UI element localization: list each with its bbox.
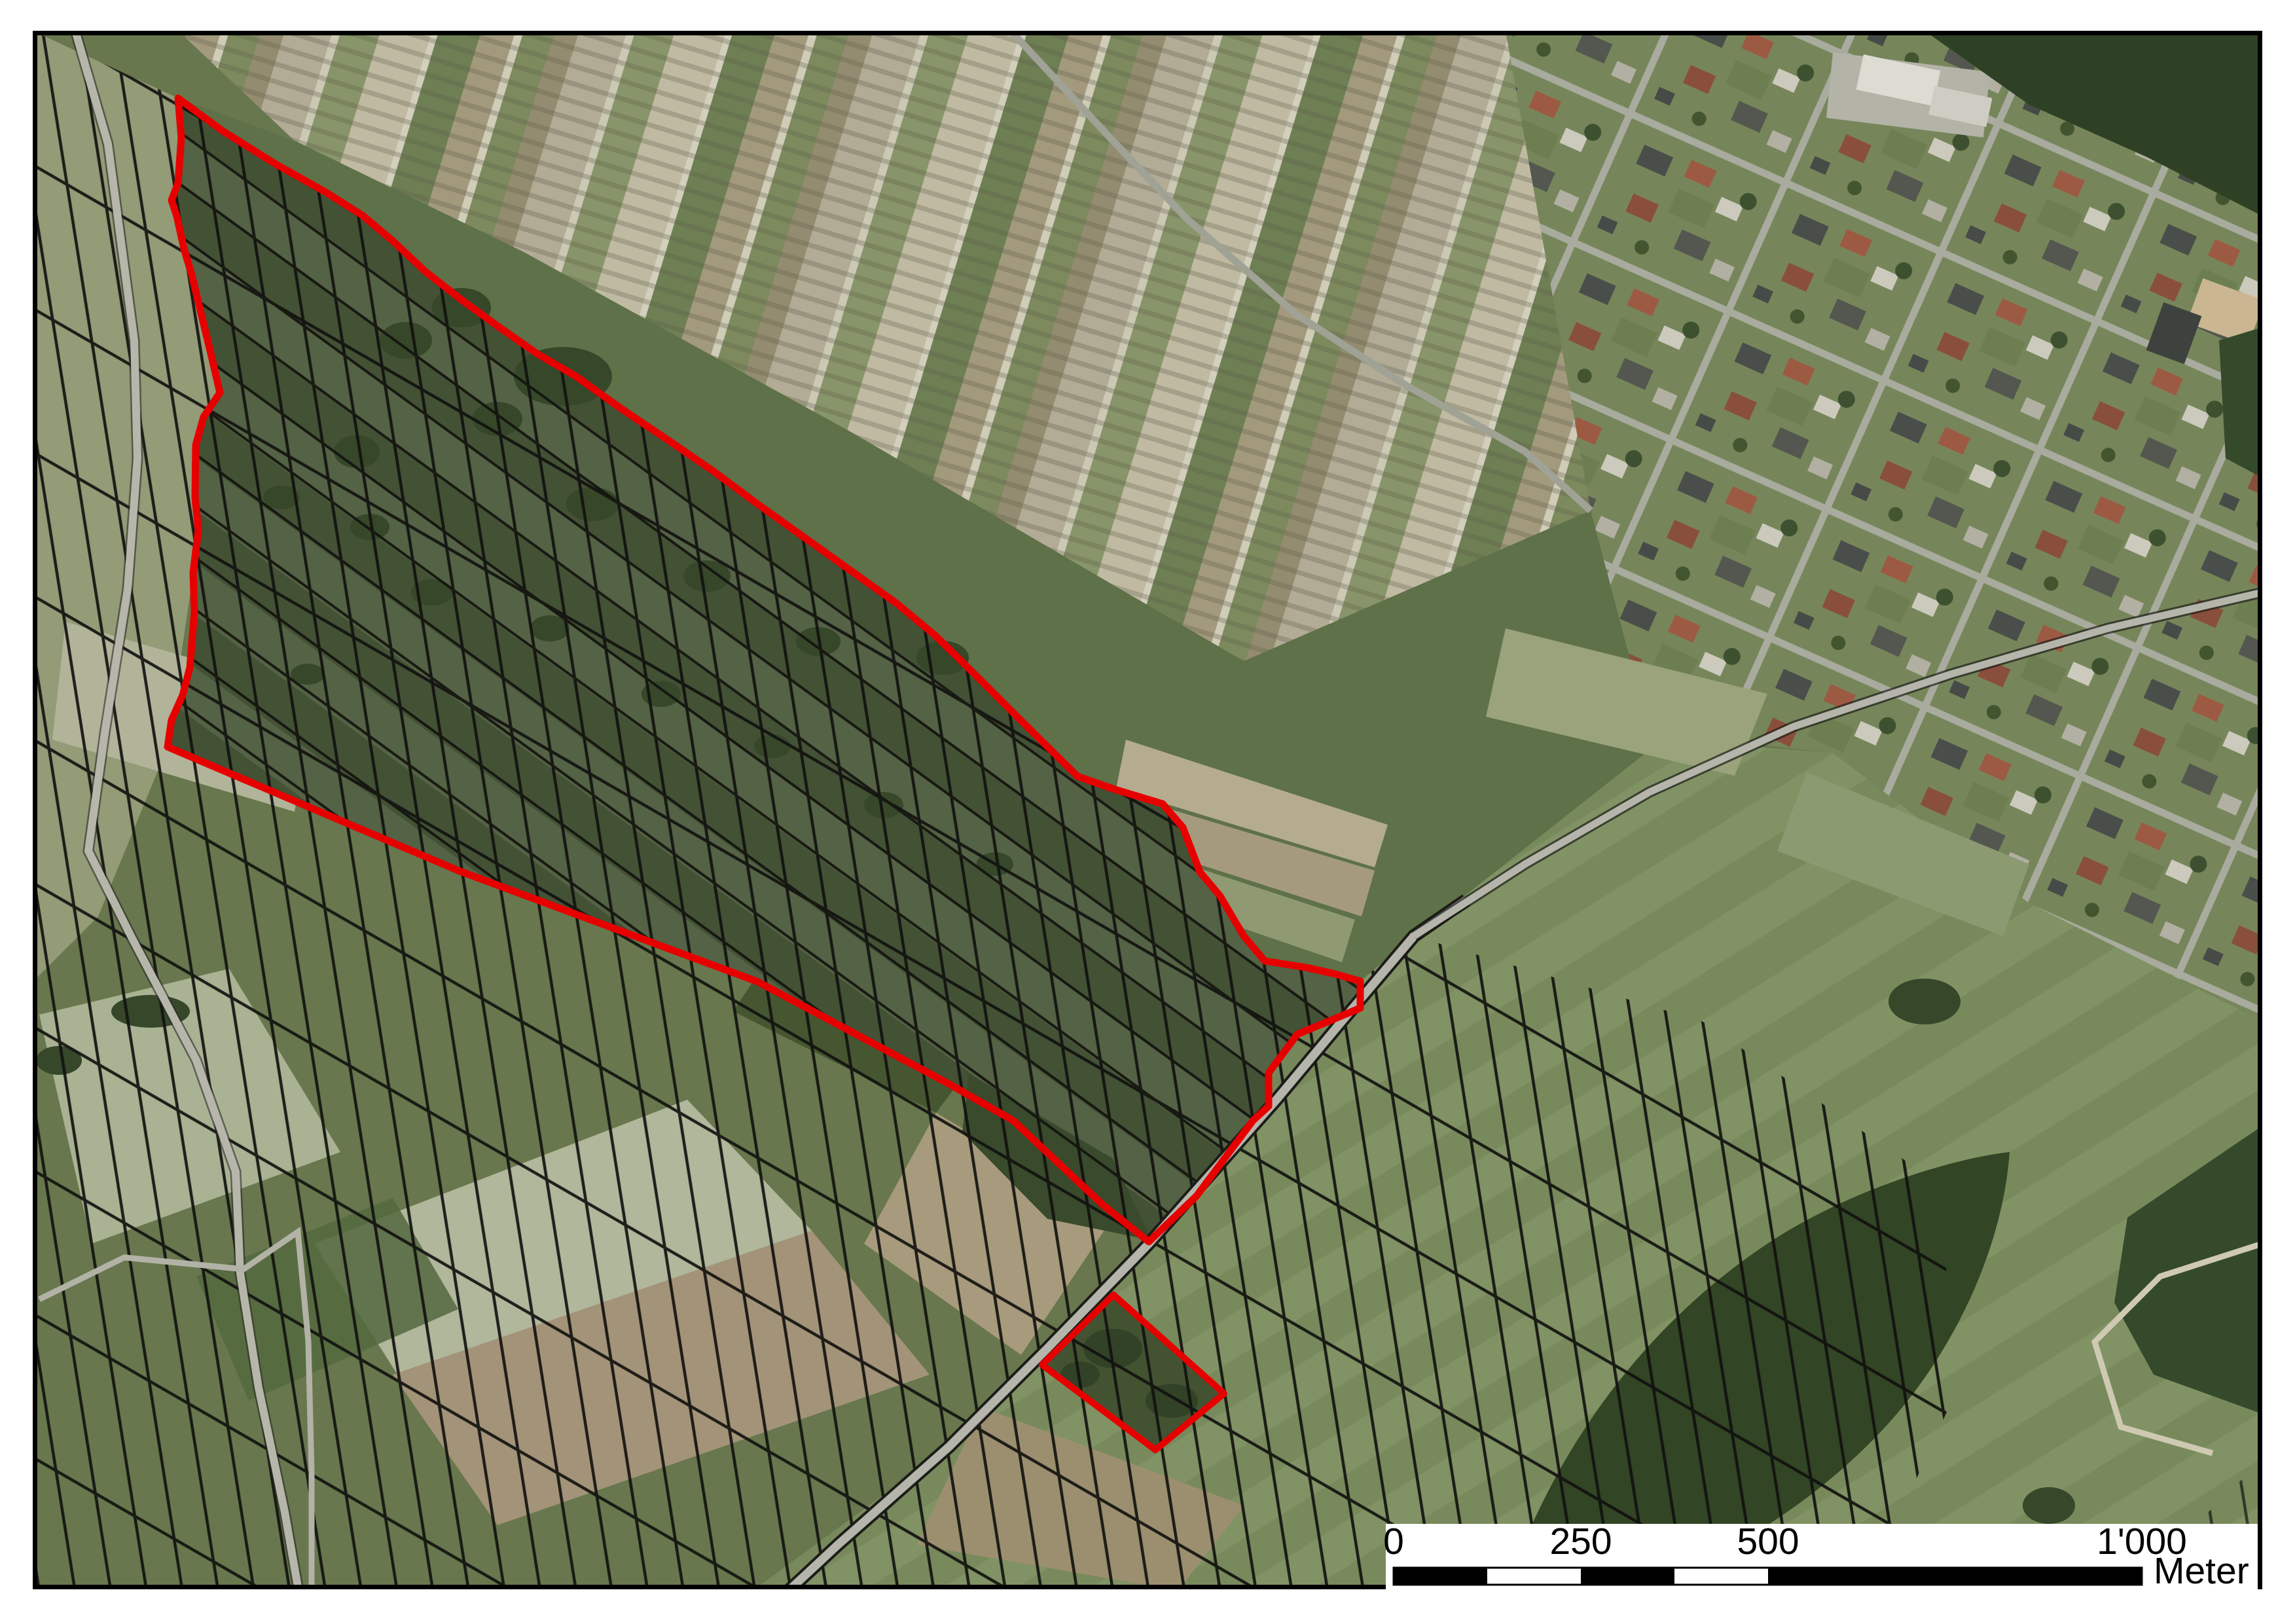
- scalebar: 0 250 500 1'000 Meter: [1383, 1521, 2262, 1624]
- scalebar-label-0: 0: [1383, 1521, 1404, 1562]
- scalebar-label-250: 250: [1549, 1521, 1612, 1562]
- forest-east-edge: [2219, 327, 2262, 478]
- map-canvas: 0 250 500 1'000 Meter: [0, 0, 2295, 1624]
- map-export-page: 0 250 500 1'000 Meter: [0, 0, 2295, 1624]
- aerial-imagery: [33, 31, 2264, 1624]
- scalebar-label-500: 500: [1737, 1521, 1799, 1562]
- scalebar-unit: Meter: [2154, 1550, 2249, 1592]
